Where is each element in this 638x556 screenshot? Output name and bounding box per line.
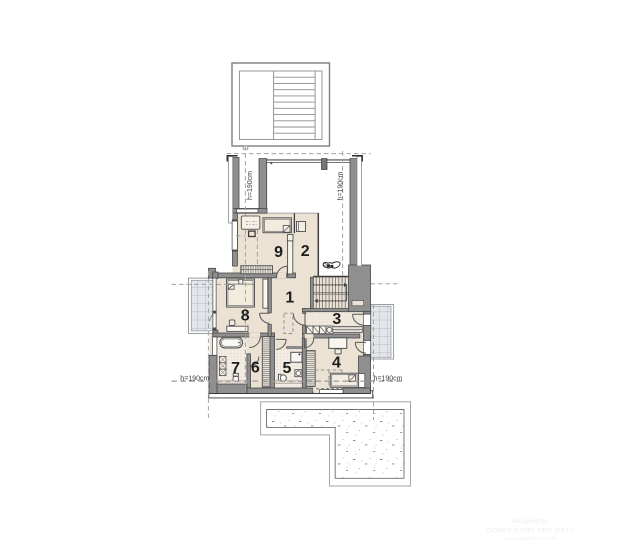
svg-text:h=190cm: h=190cm (374, 376, 403, 383)
svg-text:h=190cm: h=190cm (338, 171, 345, 200)
svg-text:4: 4 (332, 355, 341, 372)
svg-text:8: 8 (241, 308, 250, 325)
svg-text:DOBRE DOMY PROJEKTY: DOBRE DOMY PROJEKTY (487, 528, 575, 535)
svg-text:Designed by: Designed by (512, 518, 549, 525)
svg-text:h=190cm: h=190cm (247, 171, 254, 200)
svg-text:9: 9 (274, 244, 283, 261)
svg-text:h=190cm: h=190cm (180, 376, 209, 383)
svg-text:6: 6 (251, 360, 260, 377)
svg-text:1: 1 (285, 290, 294, 307)
svg-text:3: 3 (332, 311, 341, 328)
svg-text:2: 2 (301, 243, 310, 260)
svg-text:7: 7 (231, 360, 240, 377)
svg-text:5: 5 (283, 360, 292, 377)
svg-text:www projekty domow: www projekty domow (504, 536, 557, 542)
